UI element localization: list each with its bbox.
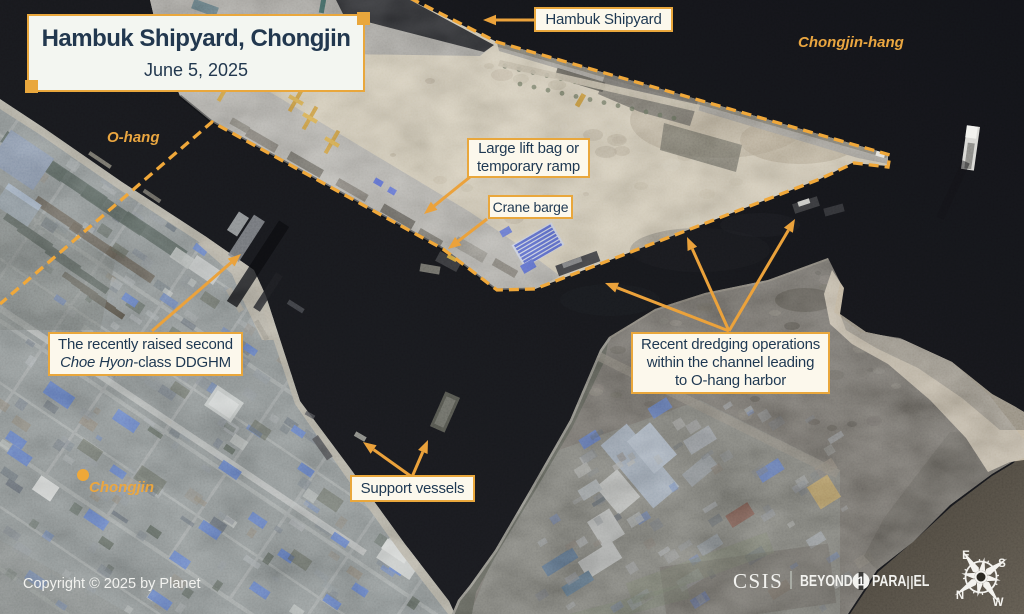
svg-text:W: W [993, 597, 1004, 609]
svg-text:1: 1 [858, 575, 865, 589]
svg-text:E: E [962, 550, 970, 562]
svg-text:N: N [956, 590, 964, 602]
svg-text:S: S [998, 558, 1006, 570]
